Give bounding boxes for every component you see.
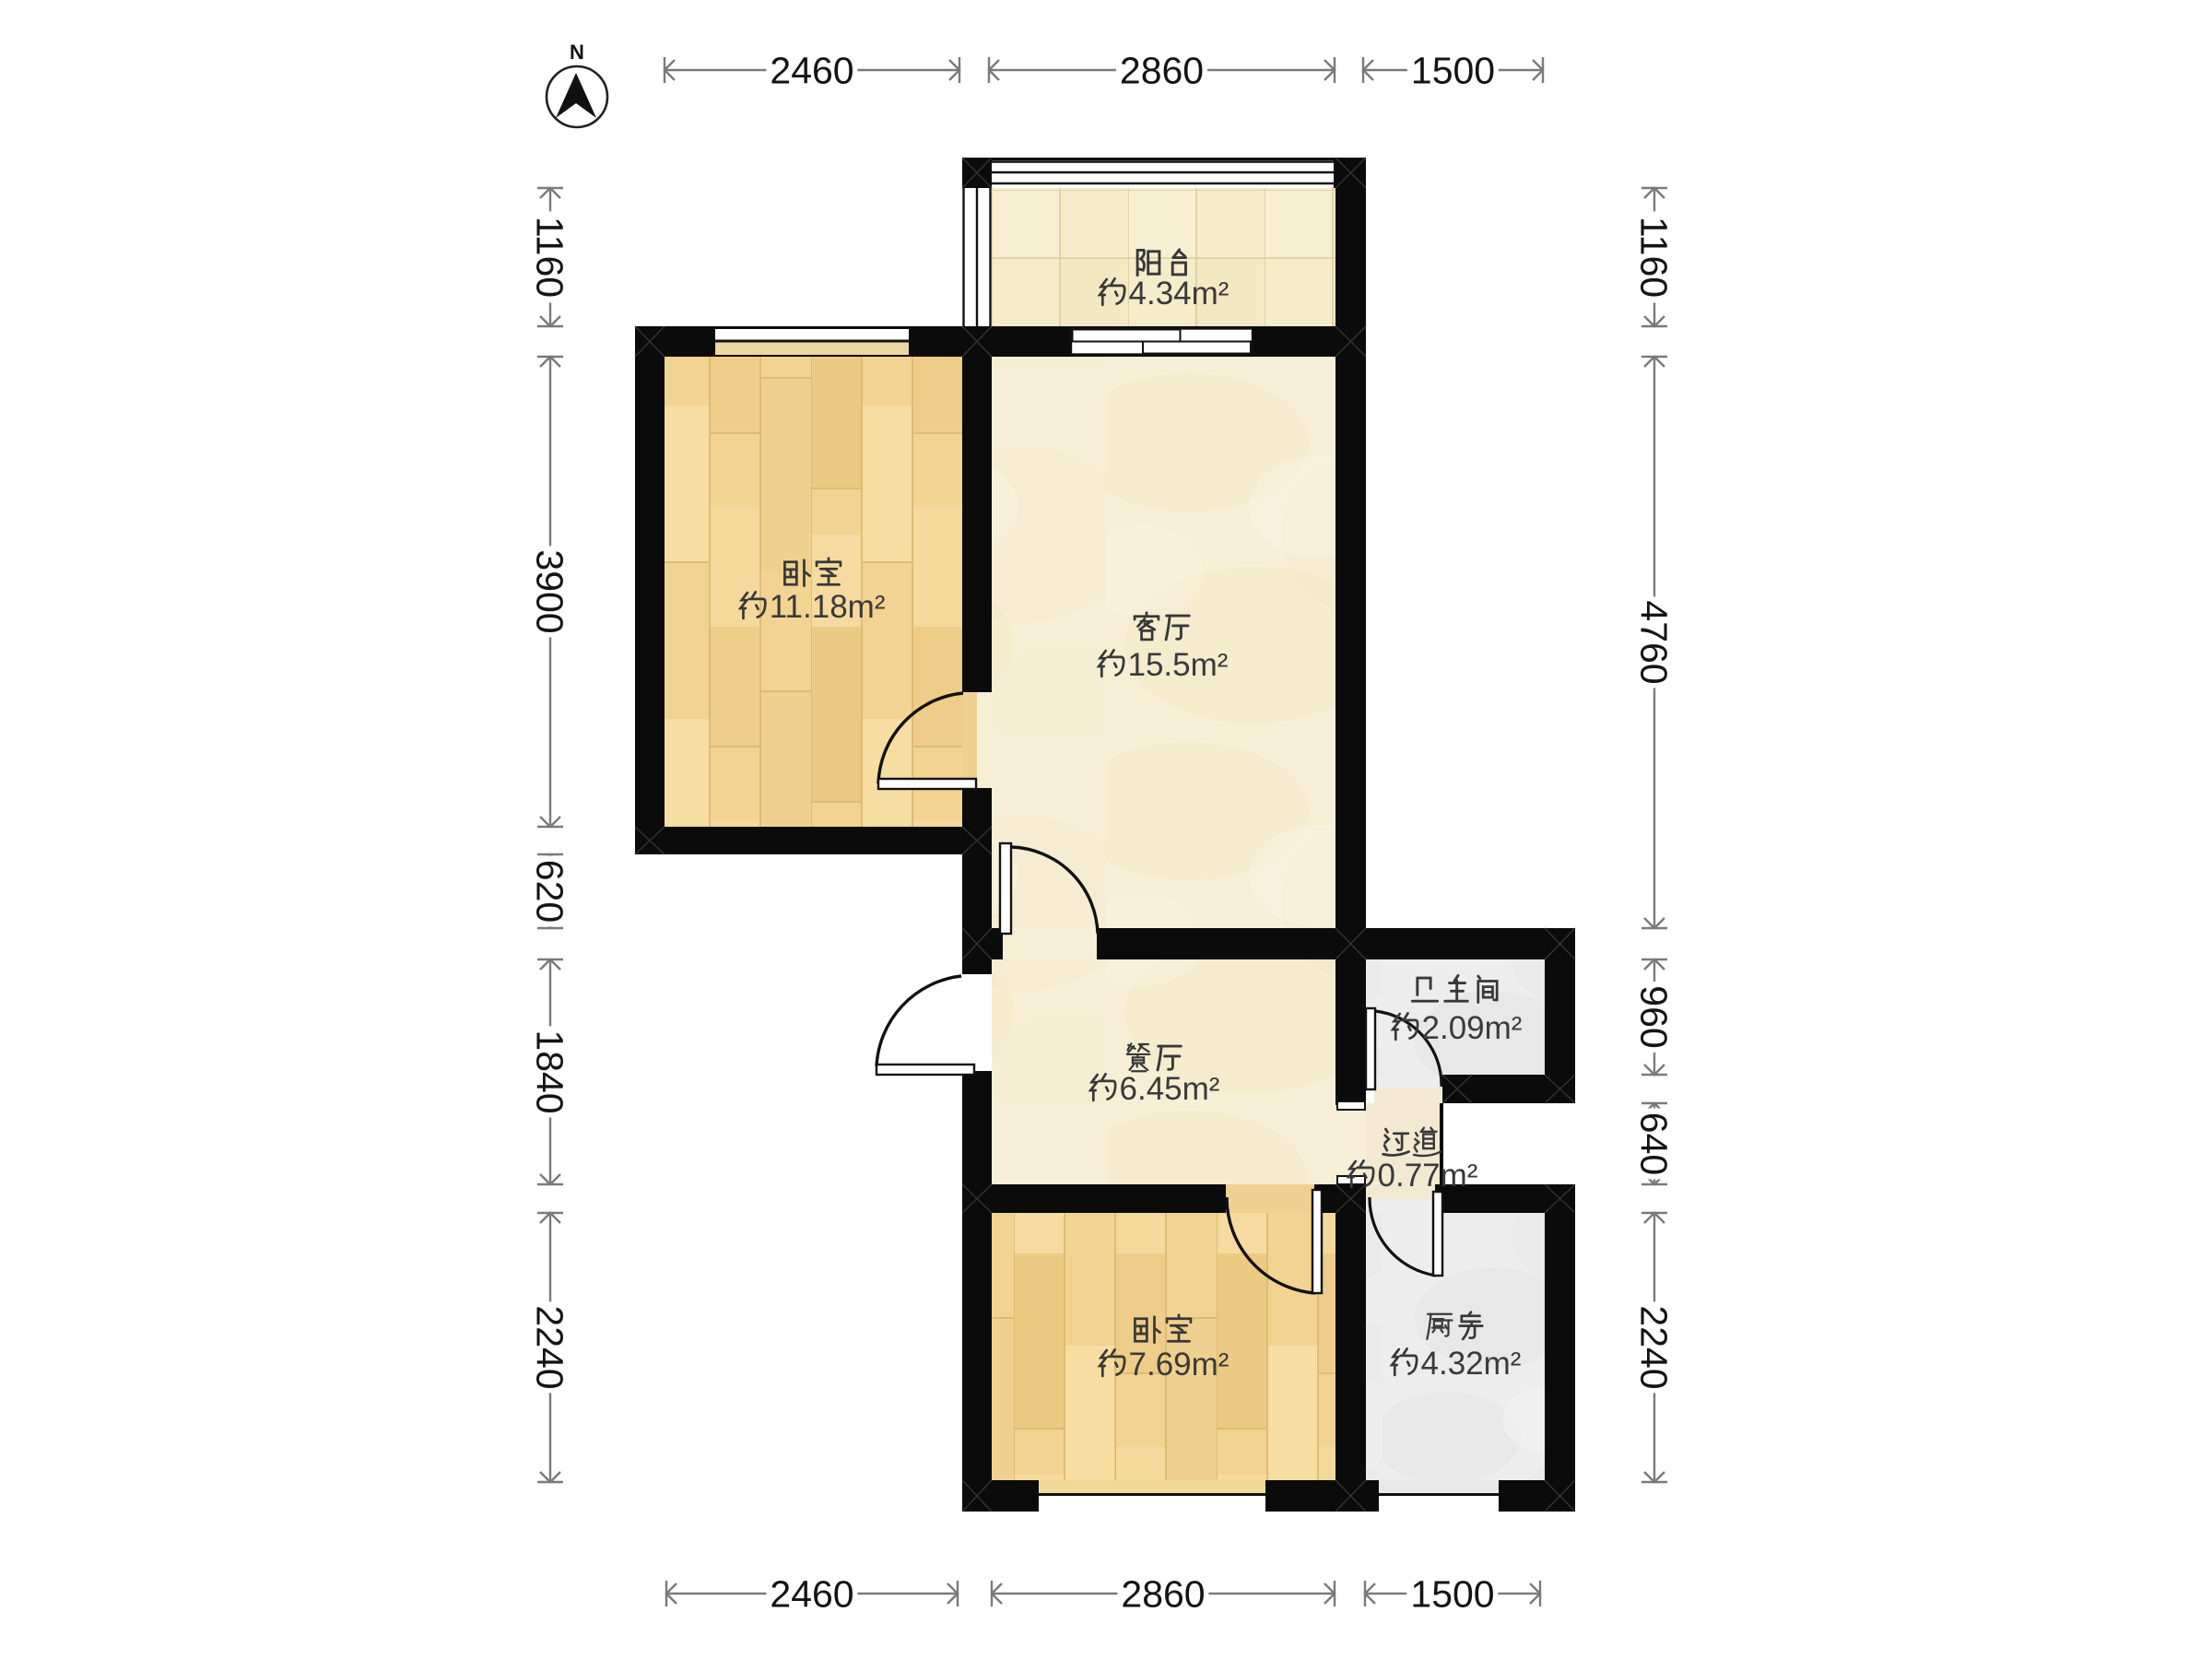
svg-text:4.34m²: 4.34m² — [1129, 276, 1230, 312]
svg-text:4.32m²: 4.32m² — [1421, 1346, 1522, 1382]
svg-text:15.5m²: 15.5m² — [1128, 647, 1229, 683]
svg-text:1840: 1840 — [529, 1030, 571, 1113]
svg-text:N: N — [570, 41, 584, 64]
svg-text:0.77m²: 0.77m² — [1378, 1158, 1478, 1194]
svg-text:620: 620 — [529, 860, 571, 923]
svg-text:2.09m²: 2.09m² — [1422, 1010, 1523, 1046]
svg-text:2240: 2240 — [1633, 1305, 1676, 1389]
svg-text:7.69m²: 7.69m² — [1129, 1347, 1230, 1382]
svg-text:2460: 2460 — [770, 50, 853, 92]
svg-text:2240: 2240 — [529, 1305, 571, 1389]
svg-text:4760: 4760 — [1633, 600, 1676, 684]
svg-text:640: 640 — [1633, 1112, 1676, 1175]
svg-text:1160: 1160 — [1633, 217, 1676, 298]
svg-text:1500: 1500 — [1411, 50, 1495, 92]
svg-text:2860: 2860 — [1120, 50, 1204, 92]
svg-text:2860: 2860 — [1121, 1573, 1205, 1616]
svg-text:3900: 3900 — [529, 549, 571, 633]
svg-text:1500: 1500 — [1410, 1573, 1494, 1616]
svg-text:2460: 2460 — [770, 1573, 853, 1616]
svg-text:6.45m²: 6.45m² — [1120, 1071, 1220, 1107]
svg-text:11.18m²: 11.18m² — [770, 589, 886, 625]
svg-text:960: 960 — [1633, 985, 1676, 1048]
svg-text:1160: 1160 — [529, 217, 571, 298]
